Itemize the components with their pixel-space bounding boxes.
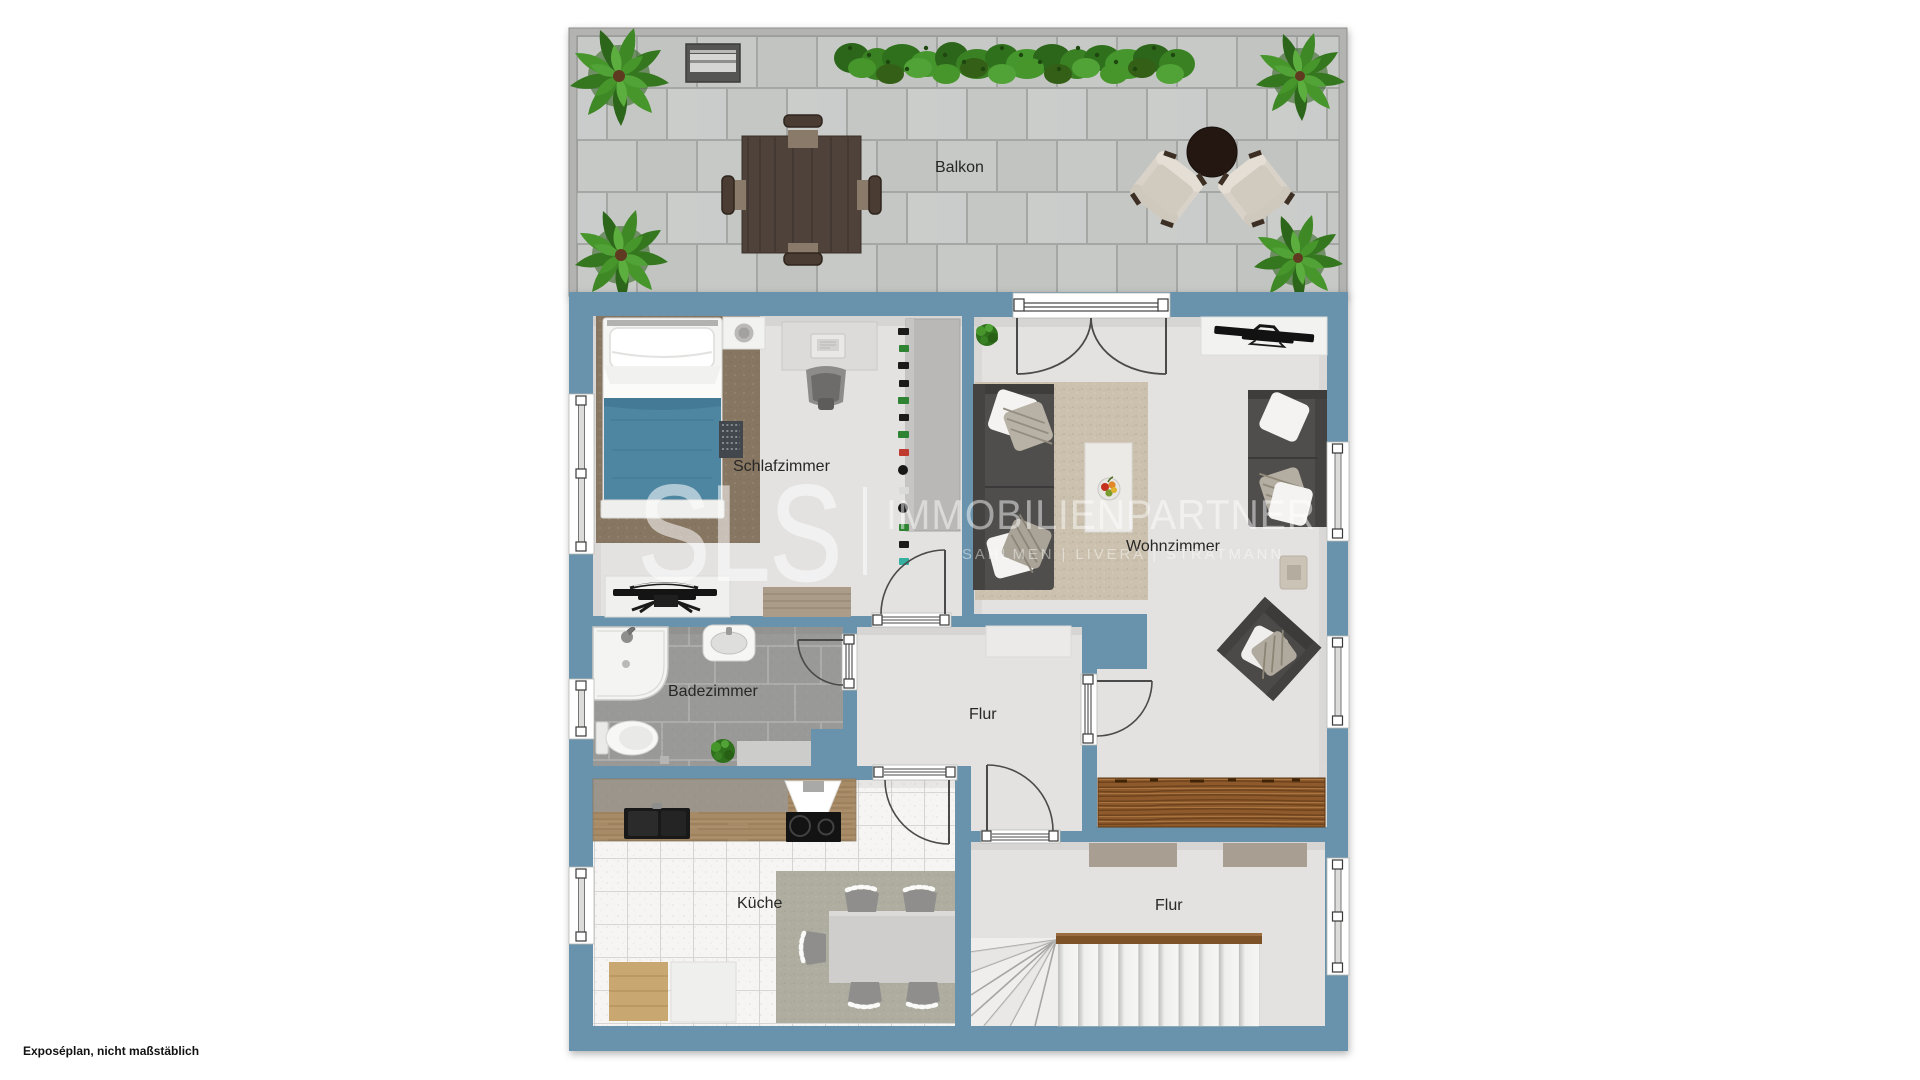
svg-text:Flur: Flur [1155, 897, 1183, 914]
svg-text:SLS: SLS [638, 457, 842, 609]
svg-text:IMMOBILIENPARTNER: IMMOBILIENPARTNER [886, 491, 1316, 538]
svg-text:Badezimmer: Badezimmer [668, 683, 758, 700]
svg-text:Exposéplan, nicht maßstäblich: Exposéplan, nicht maßstäblich [23, 1044, 199, 1058]
svg-text:SAHLMEN | LIVERA | STRATMANN: SAHLMEN | LIVERA | STRATMANN [962, 546, 1284, 563]
svg-text:Balkon: Balkon [935, 159, 984, 176]
svg-text:Flur: Flur [969, 706, 997, 723]
svg-text:Küche: Küche [737, 895, 782, 912]
